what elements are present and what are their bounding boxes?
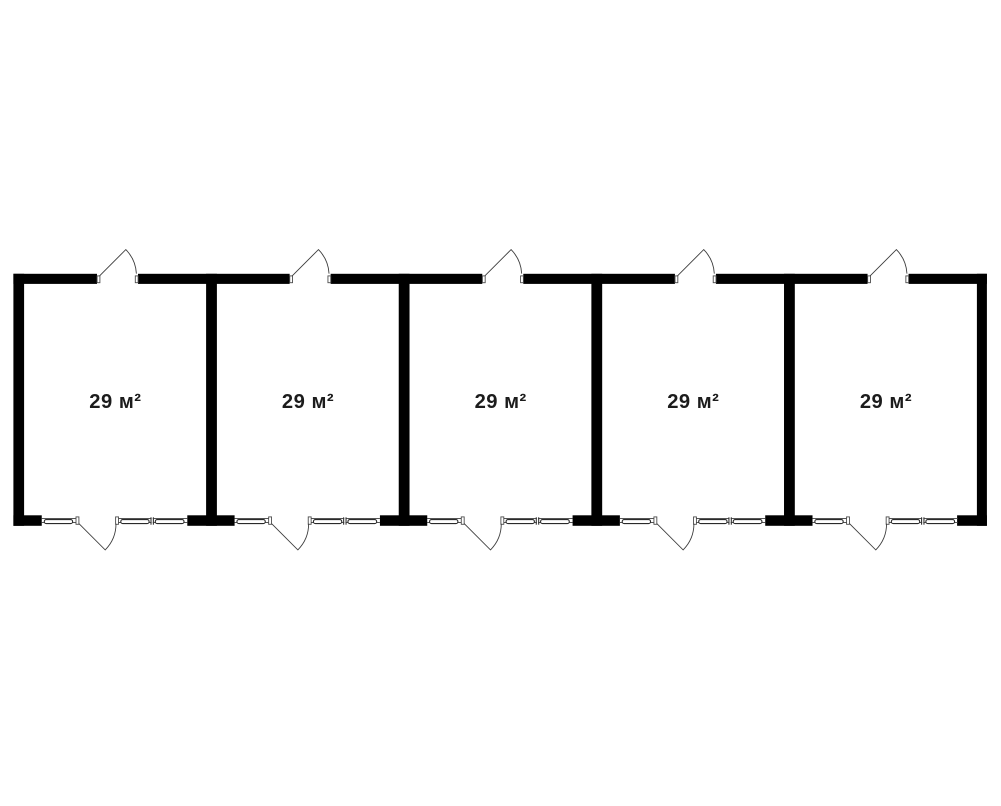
svg-text:29 м²: 29 м²: [667, 391, 719, 413]
svg-text:29 м²: 29 м²: [89, 391, 141, 413]
svg-text:29 м²: 29 м²: [282, 391, 334, 413]
svg-text:29 м²: 29 м²: [475, 391, 527, 413]
svg-text:29 м²: 29 м²: [860, 391, 912, 413]
